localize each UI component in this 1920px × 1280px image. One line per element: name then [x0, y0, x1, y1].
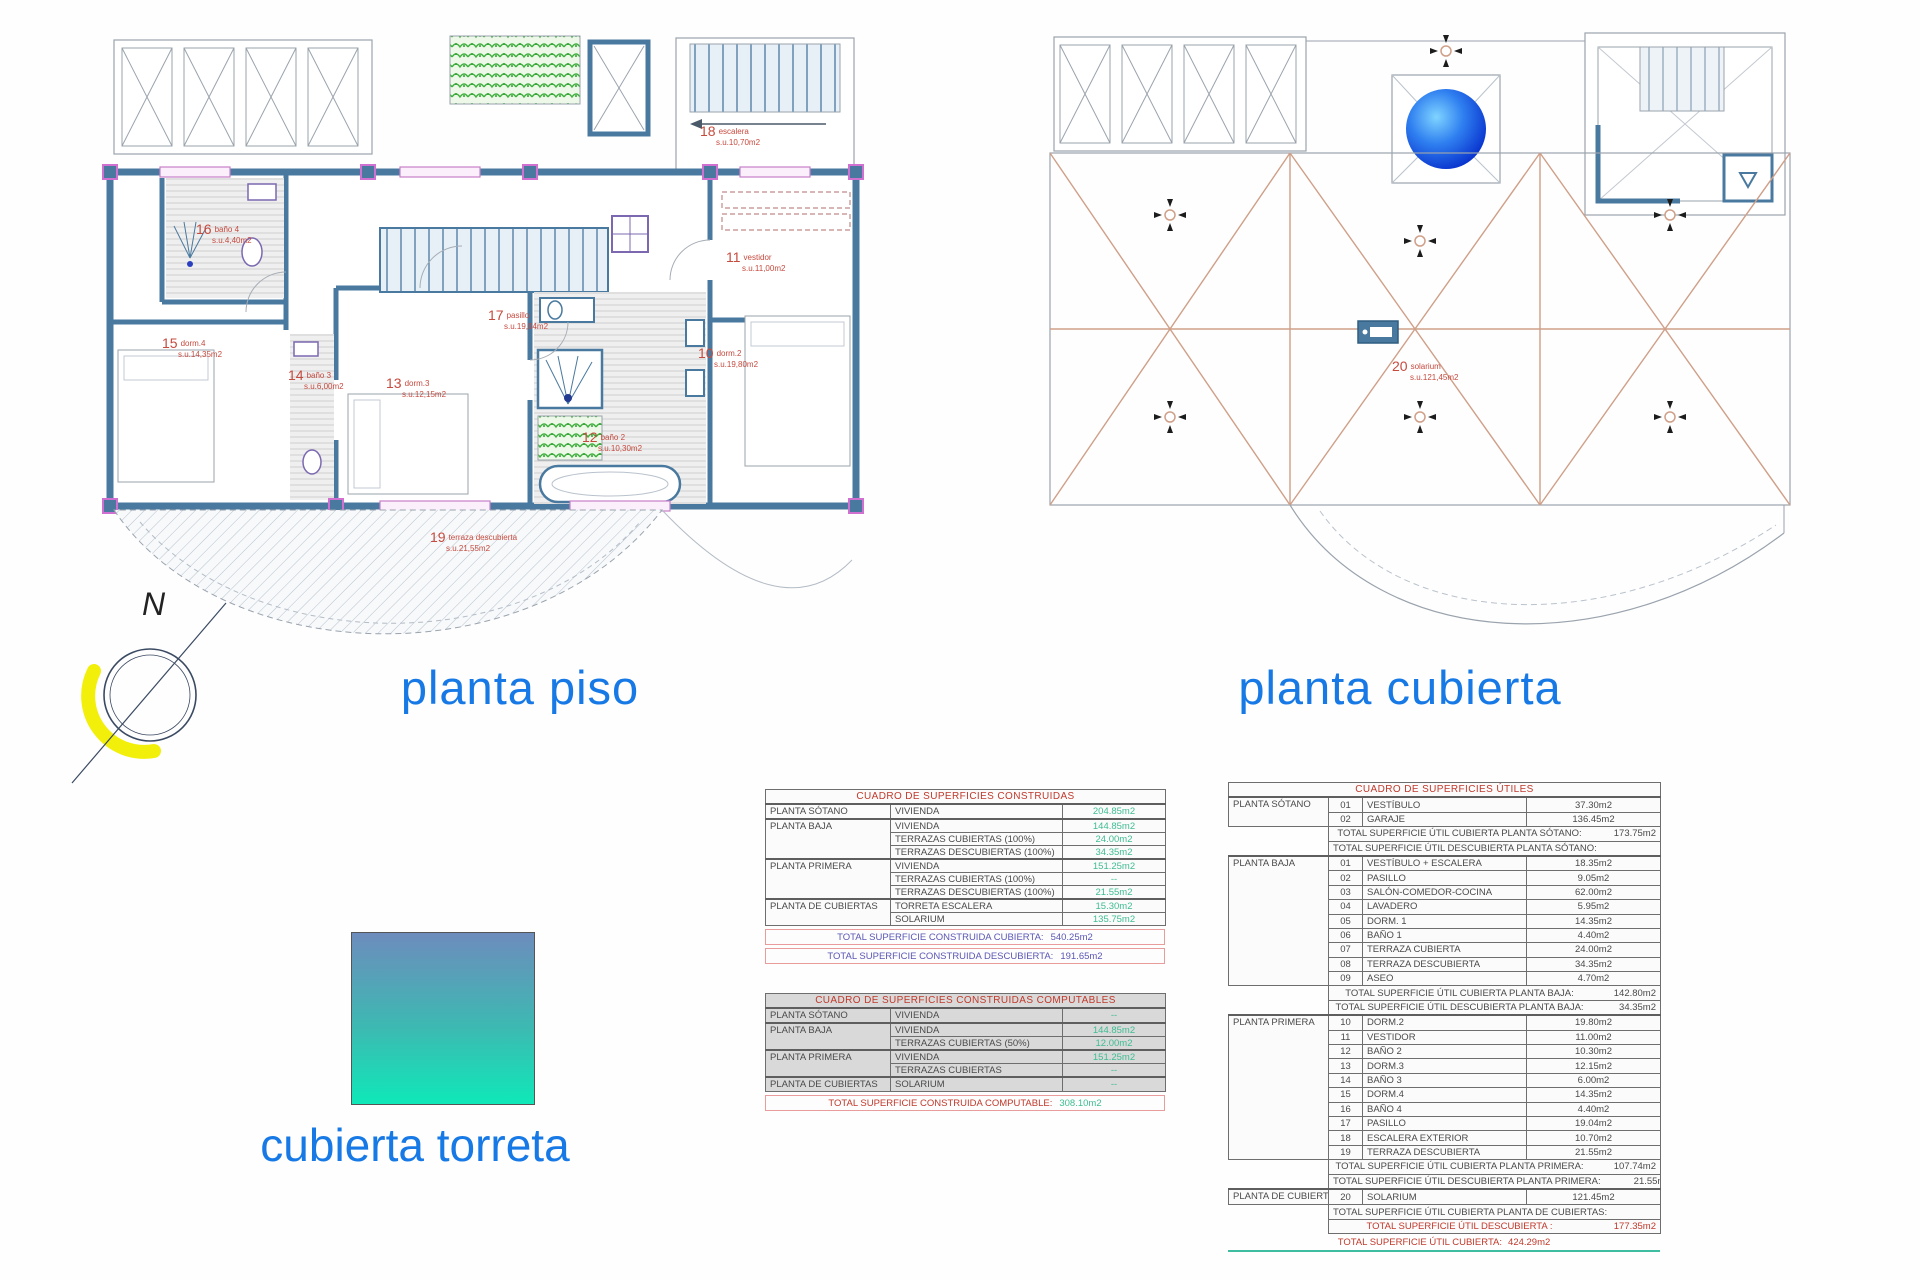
elevator	[590, 42, 648, 134]
table-row: PLANTA PRIMERAVIVIENDA151.25m2	[766, 859, 1166, 873]
table-cell: 01	[1329, 856, 1363, 871]
table-cell: VIVIENDA	[891, 1008, 1063, 1023]
table-cell: VESTÍBULO	[1363, 797, 1527, 812]
table-floor-cell: PLANTA SÓTANO	[1229, 797, 1329, 826]
table-cell: 14.35m2	[1527, 914, 1661, 928]
table-cell: 05	[1329, 914, 1363, 928]
table-cell: 135.75m2	[1063, 913, 1166, 926]
table-cell: TERRAZAS DESCUBIERTAS (100%)	[891, 846, 1063, 860]
table-utiles: CUADRO DE SUPERFICIES ÚTILES PLANTA SÓTA…	[1228, 782, 1660, 1252]
table-cell: 62.00m2	[1527, 885, 1661, 899]
table-cell: 02	[1329, 871, 1363, 885]
table-cell: 10	[1329, 1015, 1363, 1030]
bathroom-2	[534, 292, 706, 504]
table-row: TOTAL SUPERFICIE ÚTIL CUBIERTA PLANTA DE…	[1229, 1205, 1661, 1219]
table-cell: 07	[1329, 943, 1363, 957]
svg-text:s.u.21,55m2: s.u.21,55m2	[446, 544, 491, 553]
drawing-sheet: 16baño 4 s.u.4,40m2 18escalera s.u.10,70…	[0, 0, 1920, 1280]
table-row: PLANTA DE CUBIERTAS20SOLARIUM121.45m2	[1229, 1189, 1661, 1205]
table-cell: 34.35m2	[1063, 846, 1166, 860]
table-cell: 5.95m2	[1527, 900, 1661, 914]
total-construida-cubierta: TOTAL SUPERFICIE CONSTRUIDA CUBIERTA:540…	[765, 929, 1165, 945]
table-cell: SOLARIUM	[1363, 1189, 1527, 1205]
table-total-cell: TOTAL SUPERFICIE ÚTIL DESCUBIERTA PLANTA…	[1329, 1000, 1661, 1015]
table-cell: 136.45m2	[1527, 812, 1661, 826]
bed-dorm3	[348, 394, 468, 494]
table-floor-cell: PLANTA PRIMERA	[1229, 1015, 1329, 1159]
total-construida-computable: TOTAL SUPERFICIE CONSTRUIDA COMPUTABLE:3…	[765, 1095, 1165, 1111]
table-title: CUADRO DE SUPERFICIES CONSTRUIDAS COMPUT…	[766, 994, 1166, 1009]
table-cell: 11	[1329, 1030, 1363, 1044]
table-cell: 10.70m2	[1527, 1131, 1661, 1145]
table-floor-cell: PLANTA PRIMERA	[766, 1050, 891, 1077]
table-cell: 12.15m2	[1527, 1059, 1661, 1073]
svg-text:s.u.4,40m2: s.u.4,40m2	[212, 236, 252, 245]
table-cell: 151.25m2	[1063, 1050, 1166, 1064]
north-label: N	[142, 586, 166, 622]
table-construidas: CUADRO DE SUPERFICIES CONSTRUIDAS PLANTA…	[765, 789, 1165, 964]
table-cell: VIVIENDA	[891, 819, 1063, 833]
table-row: PLANTA BAJAVIVIENDA144.85m2	[766, 819, 1166, 833]
svg-text:s.u.12,15m2: s.u.12,15m2	[402, 390, 447, 399]
table-floor-cell: PLANTA SÓTANO	[766, 804, 891, 819]
table-cell: TERRAZAS CUBIERTAS	[891, 1064, 1063, 1078]
table-row: PLANTA DE CUBIERTASTORRETA ESCALERA15.30…	[766, 899, 1166, 913]
table-cell: VIVIENDA	[891, 804, 1063, 819]
table-cell: 24.00m2	[1527, 943, 1661, 957]
table-cell: TERRAZA DESCUBIERTA	[1363, 957, 1527, 971]
table-row: PLANTA SÓTANOVIVIENDA204.85m2	[766, 804, 1166, 819]
table-cell: LAVADERO	[1363, 900, 1527, 914]
roof-vent	[1358, 321, 1398, 343]
table-cell: DORM. 1	[1363, 914, 1527, 928]
table-cell: 4.40m2	[1527, 928, 1661, 942]
table-cell: TERRAZAS DESCUBIERTAS (100%)	[891, 886, 1063, 900]
table-computables: CUADRO DE SUPERFICIES CONSTRUIDAS COMPUT…	[765, 993, 1165, 1111]
svg-text:s.u.11,00m2: s.u.11,00m2	[742, 264, 786, 273]
stair-tower	[1585, 33, 1785, 215]
table-cell: 204.85m2	[1063, 804, 1166, 819]
table-total-cell: TOTAL SUPERFICIE ÚTIL DESCUBIERTA PLANTA…	[1329, 841, 1661, 856]
svg-text:s.u.10,70m2: s.u.10,70m2	[716, 138, 761, 147]
table-cell: 13	[1329, 1059, 1363, 1073]
table-cell: 12.00m2	[1063, 1037, 1166, 1051]
table-row: TOTAL SUPERFICIE ÚTIL DESCUBIERTA PLANTA…	[1229, 1000, 1661, 1015]
table-floor-cell: PLANTA BAJA	[766, 1023, 891, 1050]
title-planta-piso: planta piso	[310, 660, 730, 715]
total-construida-descubierta: TOTAL SUPERFICIE CONSTRUIDA DESCUBIERTA:…	[765, 948, 1165, 964]
table-cell: PASILLO	[1363, 1116, 1527, 1130]
table-total-cell: TOTAL SUPERFICIE ÚTIL CUBIERTA PLANTA SÓ…	[1329, 827, 1661, 841]
floor-plan-piso: 16baño 4 s.u.4,40m2 18escalera s.u.10,70…	[100, 20, 920, 660]
dome-skylight	[1392, 75, 1500, 183]
table-cell: 10.30m2	[1527, 1045, 1661, 1059]
table-cell: 12	[1329, 1045, 1363, 1059]
table-cell: 09	[1329, 972, 1363, 986]
table-title: CUADRO DE SUPERFICIES CONSTRUIDAS	[766, 790, 1166, 805]
table-floor-cell: PLANTA DE CUBIERTAS	[766, 1077, 891, 1092]
exterior-stair	[676, 38, 854, 178]
table-cell: 19.04m2	[1527, 1116, 1661, 1130]
table-cell: BAÑO 4	[1363, 1102, 1527, 1116]
table-row: TOTAL SUPERFICIE ÚTIL DESCUBIERTA PLANTA…	[1229, 841, 1661, 856]
terrace-outline	[1290, 505, 1784, 624]
table-cell: TERRAZAS CUBIERTAS (100%)	[891, 833, 1063, 846]
svg-text:s.u.19,04m2: s.u.19,04m2	[504, 322, 549, 331]
roof-plan-cubierta: 20solarium s.u.121,45m2	[1040, 15, 1820, 665]
table-cell: 14.35m2	[1527, 1088, 1661, 1102]
table-cell: 18.35m2	[1527, 856, 1661, 871]
table-total-cell: TOTAL SUPERFICIE ÚTIL DESCUBIERTA :177.3…	[1329, 1219, 1661, 1233]
table-row: TOTAL SUPERFICIE ÚTIL CUBIERTA PLANTA PR…	[1229, 1160, 1661, 1174]
title-planta-cubierta: planta cubierta	[1190, 660, 1610, 715]
table-cell: TERRAZAS CUBIERTAS (50%)	[891, 1037, 1063, 1051]
table-floor-cell: PLANTA PRIMERA	[766, 859, 891, 899]
table-row: TOTAL SUPERFICIE ÚTIL DESCUBIERTA :177.3…	[1229, 1219, 1661, 1233]
table-cell: VIVIENDA	[891, 1050, 1063, 1064]
table-floor-cell: PLANTA DE CUBIERTAS	[1229, 1189, 1329, 1205]
table-cell: 14	[1329, 1073, 1363, 1087]
vegetation-strip	[450, 36, 580, 104]
bathroom-3	[290, 334, 334, 500]
table-cell: --	[1063, 1077, 1166, 1092]
table-cell: 121.45m2	[1527, 1189, 1661, 1205]
table-cell: 02	[1329, 812, 1363, 826]
table-row: PLANTA BAJAVIVIENDA144.85m2	[766, 1023, 1166, 1037]
table-cell: TORRETA ESCALERA	[891, 899, 1063, 913]
title-cubierta-torreta: cubierta torreta	[205, 1118, 625, 1172]
table-cell: 03	[1329, 885, 1363, 899]
table-row: TOTAL SUPERFICIE ÚTIL DESCUBIERTA PLANTA…	[1229, 1174, 1661, 1189]
table-cell: --	[1063, 1008, 1166, 1023]
table-total-cell: TOTAL SUPERFICIE ÚTIL CUBIERTA PLANTA DE…	[1329, 1205, 1661, 1219]
table-cell: GARAJE	[1363, 812, 1527, 826]
table-cell: SOLARIUM	[891, 1077, 1063, 1092]
table-cell: PASILLO	[1363, 871, 1527, 885]
table-cell: 08	[1329, 957, 1363, 971]
table-cell: SALÓN-COMEDOR-COCINA	[1363, 885, 1527, 899]
table-cell: 06	[1329, 928, 1363, 942]
skylight-strip	[1054, 37, 1585, 151]
roof-drain	[1430, 35, 1462, 67]
table-cell: 15	[1329, 1088, 1363, 1102]
table-cell: 20	[1329, 1189, 1363, 1205]
table-cell: ASEO	[1363, 972, 1527, 986]
table-cell: 19.80m2	[1527, 1015, 1661, 1030]
table-cell: VIVIENDA	[891, 1023, 1063, 1037]
table-title: CUADRO DE SUPERFICIES ÚTILES	[1229, 783, 1661, 798]
table-cell: 04	[1329, 900, 1363, 914]
skylight-strip	[114, 40, 372, 154]
table-cell: TERRAZA CUBIERTA	[1363, 943, 1527, 957]
table-cell: DORM.4	[1363, 1088, 1527, 1102]
svg-text:s.u.6,00m2: s.u.6,00m2	[304, 382, 344, 391]
table-floor-cell: PLANTA BAJA	[766, 819, 891, 859]
table-row: PLANTA SÓTANO01VESTÍBULO37.30m2	[1229, 797, 1661, 812]
table-floor-cell: PLANTA SÓTANO	[766, 1008, 891, 1023]
table-cell: ESCALERA EXTERIOR	[1363, 1131, 1527, 1145]
table-cell: VIVIENDA	[891, 859, 1063, 873]
svg-text:20solarium: 20solarium	[1392, 358, 1441, 374]
table-cell: 151.25m2	[1063, 859, 1166, 873]
torreta-gradient-swatch	[351, 932, 535, 1105]
svg-text:s.u.14,35m2: s.u.14,35m2	[178, 350, 223, 359]
compass-rose: N	[58, 575, 258, 795]
table-total-cell: TOTAL SUPERFICIE ÚTIL DESCUBIERTA PLANTA…	[1329, 1174, 1661, 1189]
table-cell: DORM.2	[1363, 1015, 1527, 1030]
total-util-cubierta: TOTAL SUPERFICIE ÚTIL CUBIERTA:424.29m2	[1228, 1237, 1660, 1248]
table-cell: BAÑO 3	[1363, 1073, 1527, 1087]
table-cell: DORM.3	[1363, 1059, 1527, 1073]
table-floor-cell: PLANTA DE CUBIERTAS	[766, 899, 891, 926]
table-row: PLANTA PRIMERA10DORM.219.80m2	[1229, 1015, 1661, 1030]
table-row: TOTAL SUPERFICIE ÚTIL CUBIERTA PLANTA SÓ…	[1229, 827, 1661, 841]
table-cell: 21.55m2	[1063, 886, 1166, 900]
table-cell: 24.00m2	[1063, 833, 1166, 846]
table-cell: 16	[1329, 1102, 1363, 1116]
svg-text:s.u.19,80m2: s.u.19,80m2	[714, 360, 759, 369]
table-cell: 144.85m2	[1063, 819, 1166, 833]
table-row: PLANTA DE CUBIERTASSOLARIUM--	[766, 1077, 1166, 1092]
table-row: TOTAL SUPERFICIE ÚTIL CUBIERTA PLANTA BA…	[1229, 986, 1661, 1000]
table-cell: TERRAZAS CUBIERTAS (100%)	[891, 873, 1063, 886]
table-row: PLANTA SÓTANOVIVIENDA--	[766, 1008, 1166, 1023]
svg-text:s.u.10,30m2: s.u.10,30m2	[598, 444, 643, 453]
table-cell: 9.05m2	[1527, 871, 1661, 885]
table-cell: 34.35m2	[1527, 957, 1661, 971]
table-cell: 21.55m2	[1527, 1145, 1661, 1159]
table-total-cell: TOTAL SUPERFICIE ÚTIL CUBIERTA PLANTA PR…	[1329, 1160, 1661, 1174]
table-cell: TERRAZA DESCUBIERTA	[1363, 1145, 1527, 1159]
bed-dorm2	[745, 316, 850, 466]
table-cell: VESTIDOR	[1363, 1030, 1527, 1044]
table-cell: 37.30m2	[1527, 797, 1661, 812]
table-cell: BAÑO 2	[1363, 1045, 1527, 1059]
table-cell: 4.70m2	[1527, 972, 1661, 986]
room-labels: 20solarium s.u.121,45m2	[1392, 358, 1459, 382]
table-cell: SOLARIUM	[891, 913, 1063, 926]
sheet-edge-line	[1228, 1250, 1660, 1252]
table-cell: 19	[1329, 1145, 1363, 1159]
table-row: PLANTA BAJA01VESTÍBULO + ESCALERA18.35m2	[1229, 856, 1661, 871]
table-cell: --	[1063, 873, 1166, 886]
table-cell: 6.00m2	[1527, 1073, 1661, 1087]
table-cell: BAÑO 1	[1363, 928, 1527, 942]
svg-text:s.u.121,45m2: s.u.121,45m2	[1410, 373, 1459, 382]
table-total-cell: TOTAL SUPERFICIE ÚTIL CUBIERTA PLANTA BA…	[1329, 986, 1661, 1000]
table-cell: --	[1063, 1064, 1166, 1078]
table-row: PLANTA PRIMERAVIVIENDA151.25m2	[766, 1050, 1166, 1064]
table-cell: 11.00m2	[1527, 1030, 1661, 1044]
table-cell: 4.40m2	[1527, 1102, 1661, 1116]
table-cell: 01	[1329, 797, 1363, 812]
table-cell: VESTÍBULO + ESCALERA	[1363, 856, 1527, 871]
table-cell: 17	[1329, 1116, 1363, 1130]
bed-dorm4	[118, 350, 214, 482]
table-cell: 144.85m2	[1063, 1023, 1166, 1037]
table-floor-cell: PLANTA BAJA	[1229, 856, 1329, 986]
table-cell: 15.30m2	[1063, 899, 1166, 913]
table-cell: 18	[1329, 1131, 1363, 1145]
